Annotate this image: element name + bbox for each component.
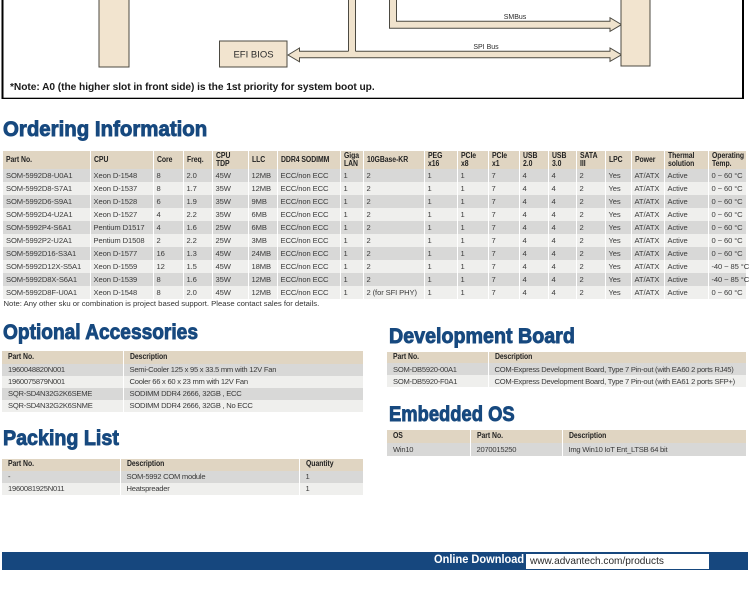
svg-text:SPI Bus: SPI Bus (473, 44, 499, 51)
svg-text:EFI BIOS: EFI BIOS (233, 50, 273, 61)
svg-text:SMBus: SMBus (504, 14, 527, 21)
